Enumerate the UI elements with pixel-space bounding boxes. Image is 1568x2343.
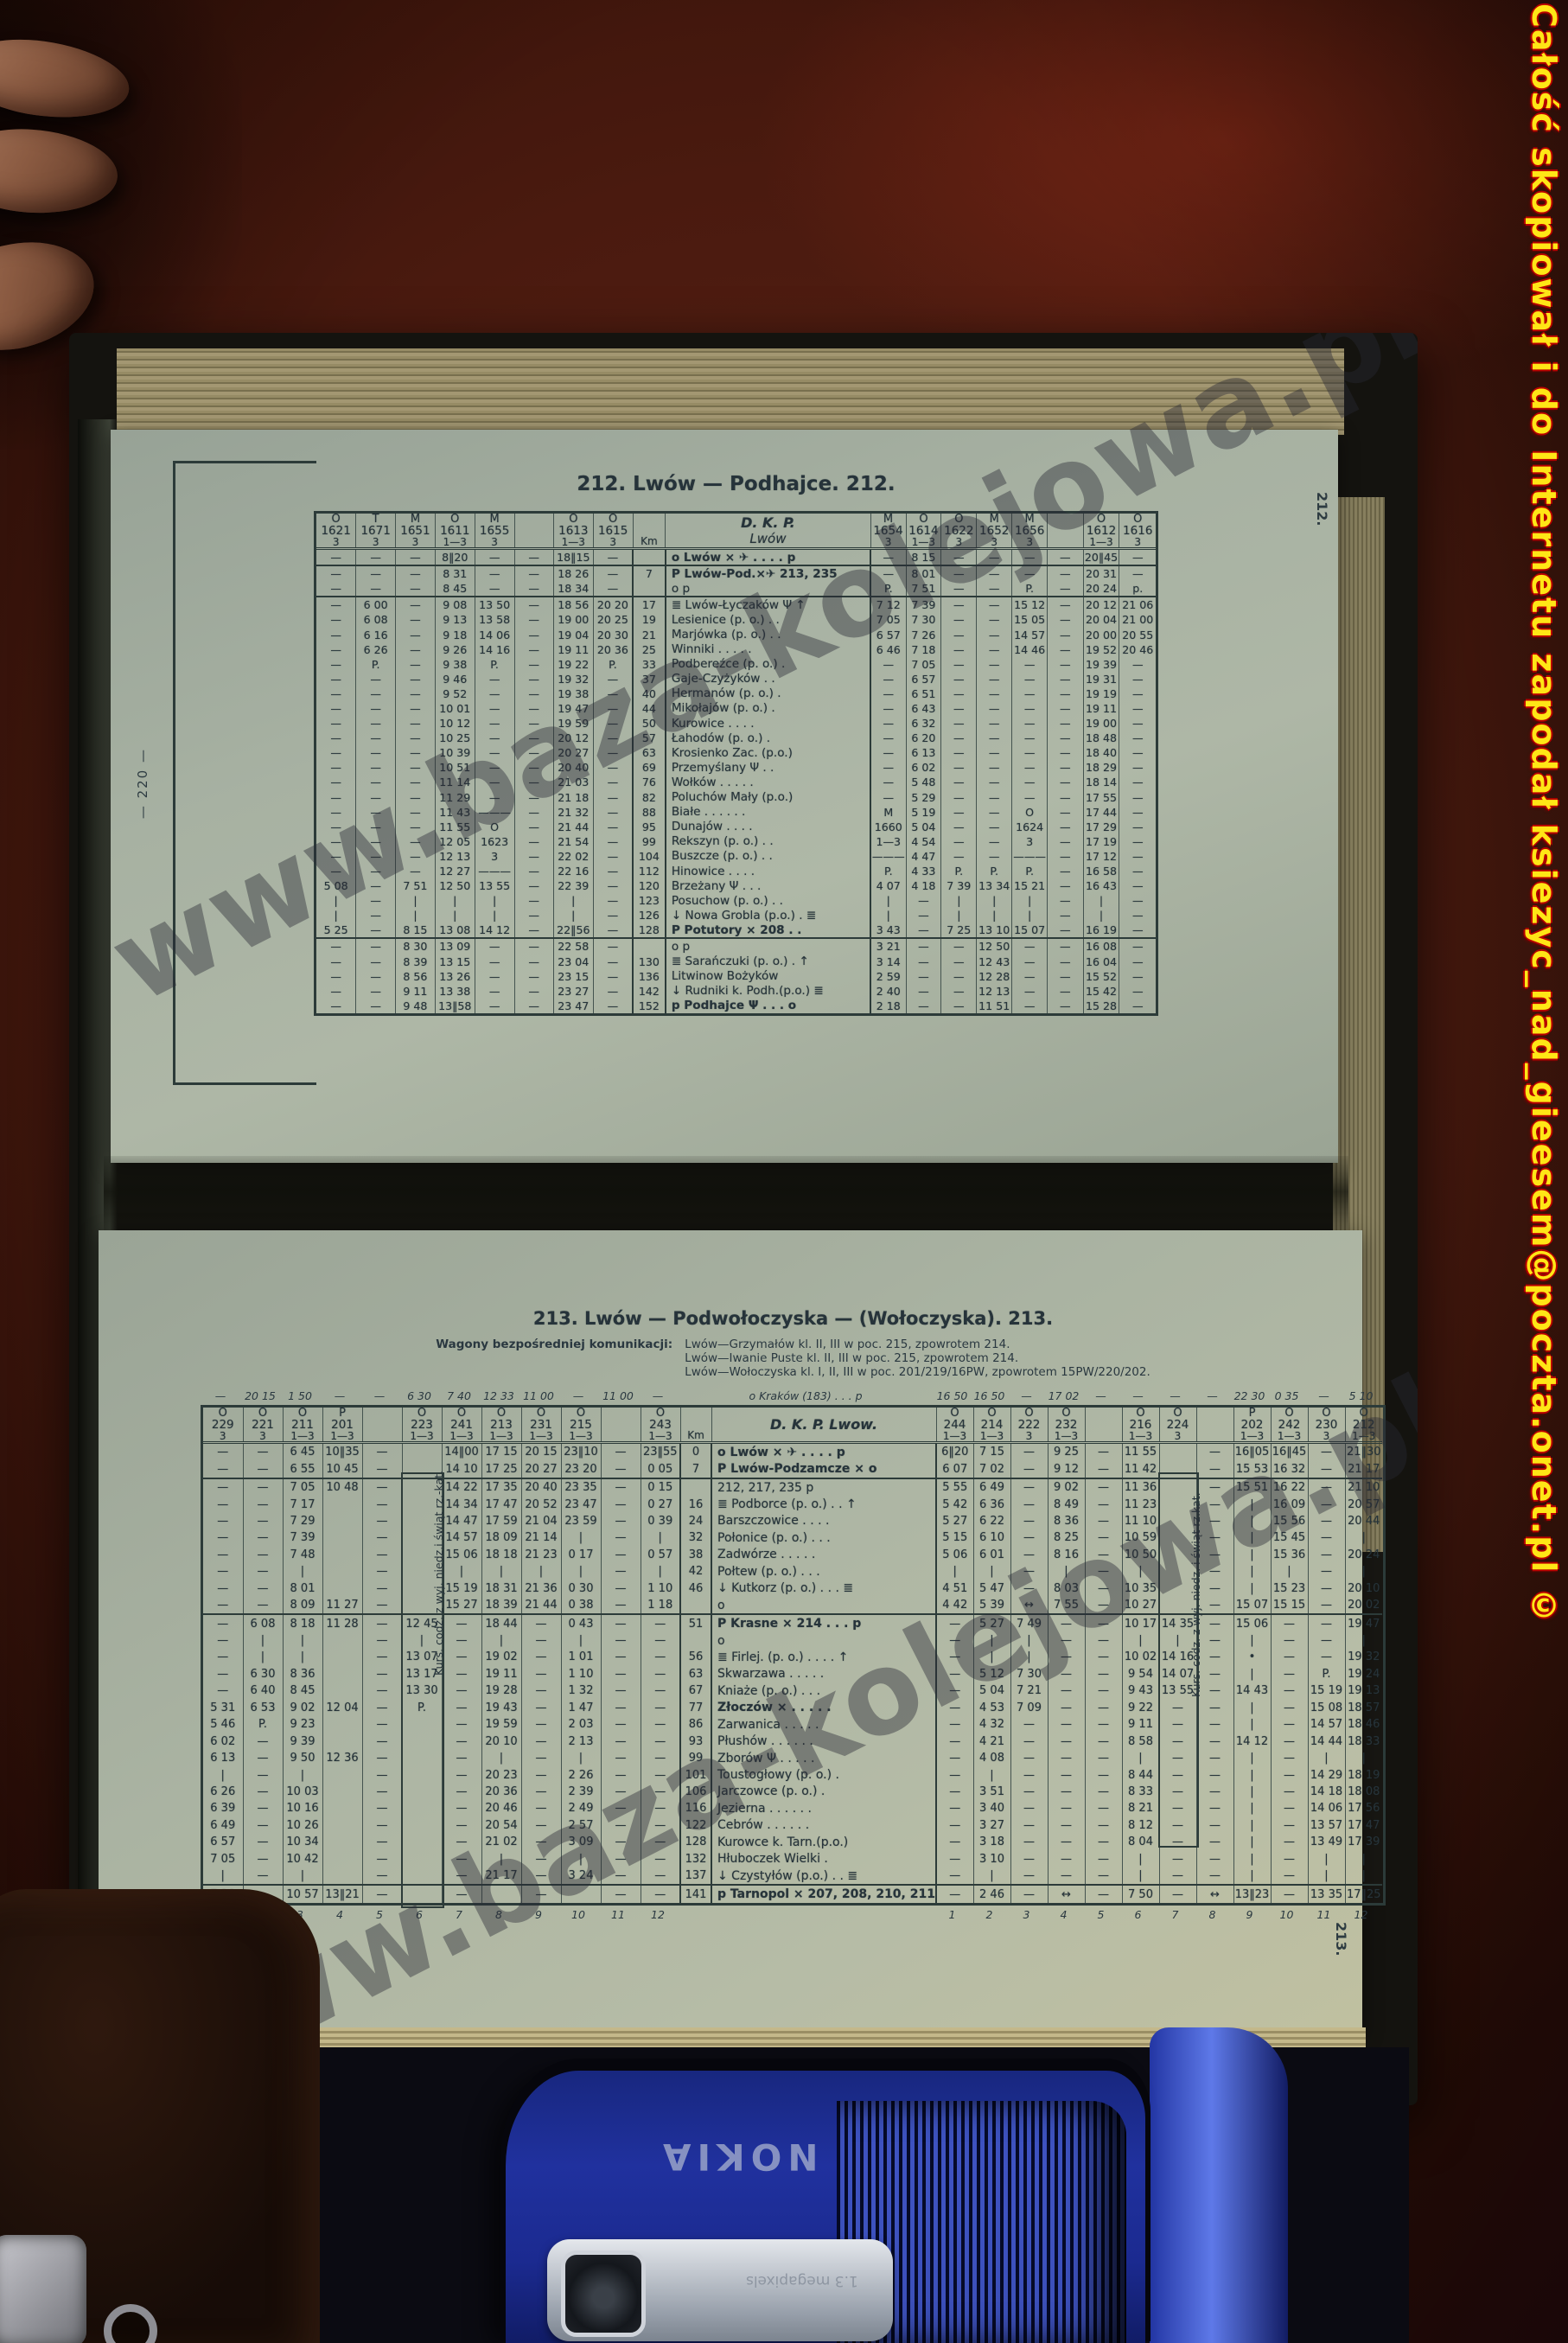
time-cell: —: [641, 1750, 680, 1766]
time-cell: —: [514, 672, 553, 686]
time-cell: —: [870, 745, 906, 760]
annotation-cell: —: [558, 1389, 598, 1402]
km-cell: 116: [680, 1800, 711, 1816]
time-cell: 19 52: [1083, 642, 1119, 657]
time-cell: —: [941, 760, 977, 775]
time-cell: —: [475, 672, 514, 686]
time-cell: |: [561, 1632, 601, 1649]
time-cell: —: [1119, 954, 1156, 969]
time-cell: 16‖05: [1233, 1443, 1271, 1461]
time-cell: 20 40: [521, 1478, 561, 1496]
time-cell: —: [521, 1867, 561, 1885]
time-cell: [402, 1443, 442, 1461]
time-cell: 5 12: [973, 1666, 1010, 1682]
time-cell: —: [941, 745, 977, 760]
time-cell: |: [973, 1563, 1010, 1580]
train-column-header: O2421—3: [1271, 1408, 1308, 1443]
time-cell: —: [362, 1666, 402, 1682]
km-cell: [680, 1597, 711, 1614]
time-cell: —: [593, 999, 633, 1013]
time-cell: P.: [870, 581, 906, 597]
time-cell: 9 22: [1122, 1700, 1159, 1716]
time-cell: —: [475, 716, 514, 731]
time-cell: 16 58: [1083, 864, 1119, 878]
time-cell: —: [356, 805, 396, 820]
km-cell: 33: [633, 657, 666, 672]
time-cell: —: [870, 731, 906, 745]
time-cell: 0 57: [641, 1547, 680, 1563]
note-line: Lwów—Iwanie Puste kl. II, III w poc. 215…: [685, 1351, 1151, 1365]
time-cell: —: [601, 1784, 641, 1800]
station-cell: ≣ Sarańczuki (p. o.) . ↑: [666, 954, 870, 969]
annotation-cell: —: [638, 1389, 678, 1402]
time-cell: 20 55: [1119, 627, 1156, 642]
time-cell: —: [601, 1547, 641, 1563]
time-cell: 19 13: [1345, 1682, 1382, 1699]
time-cell: —: [362, 1649, 402, 1665]
time-cell: —: [1010, 1580, 1048, 1597]
train-column-header: O16121—3: [1083, 514, 1119, 549]
time-cell: —: [641, 1817, 680, 1834]
time-cell: |: [283, 1632, 322, 1649]
time-cell: |: [936, 1563, 973, 1580]
time-cell: [402, 1800, 442, 1816]
annotation-cell: 6: [1119, 1908, 1157, 1921]
time-cell: —: [514, 820, 553, 834]
time-cell: —: [1012, 984, 1048, 999]
time-cell: —: [1271, 1716, 1308, 1733]
station-cell: Hermanów (p. o.) .: [666, 686, 870, 701]
time-cell: M: [870, 805, 906, 820]
time-cell: |: [1010, 1649, 1048, 1665]
time-cell: —: [356, 549, 396, 566]
time-cell: 20 10: [481, 1733, 521, 1749]
train-column-header: O16213: [316, 514, 356, 549]
time-cell: —: [1119, 745, 1156, 760]
time-cell: 18 26: [553, 565, 593, 581]
time-cell: —: [1048, 954, 1083, 969]
time-cell: —: [1119, 549, 1156, 566]
annotation-cell: 10: [1268, 1908, 1305, 1921]
phone-camera-lens: [561, 2250, 646, 2337]
time-cell: |: [561, 1529, 601, 1546]
time-cell: —: [396, 549, 436, 566]
time-cell: 8 03: [1048, 1580, 1085, 1597]
time-cell: |: [316, 893, 356, 908]
time-cell: —: [362, 1580, 402, 1597]
page-stack-top-edge: [117, 348, 1344, 435]
time-cell: 16 09: [1271, 1496, 1308, 1512]
time-cell: —: [1010, 1817, 1048, 1834]
time-cell: 12 13: [435, 849, 475, 864]
time-cell: 7 29: [283, 1513, 322, 1529]
time-cell: —: [442, 1649, 481, 1665]
time-cell: —: [362, 1496, 402, 1512]
time-cell: 9 18: [435, 627, 475, 642]
train-column-header: O2321—3: [1048, 1408, 1085, 1443]
time-cell: 15 36: [1271, 1547, 1308, 1563]
time-cell: 7 50: [1122, 1885, 1159, 1902]
annotation-cell: 11: [598, 1908, 638, 1921]
train-column-header: O2431—3: [641, 1408, 680, 1443]
time-cell: 7 26: [906, 627, 941, 642]
time-cell: —: [870, 686, 906, 701]
km-cell: 77: [680, 1700, 711, 1716]
time-cell: —: [362, 1800, 402, 1816]
time-cell: 14 43: [1233, 1682, 1271, 1699]
time-cell: —: [514, 984, 553, 999]
time-cell: —: [442, 1817, 481, 1834]
station-cell: ≣ Podborce (p. o.) . . ↑: [711, 1496, 936, 1512]
time-cell: 17 12: [1083, 849, 1119, 864]
time-cell: 15 51: [1233, 1478, 1271, 1496]
time-cell: |: [1345, 1563, 1382, 1580]
time-cell: —: [1048, 581, 1083, 597]
time-cell: —: [641, 1834, 680, 1850]
time-cell: 4 47: [906, 849, 941, 864]
time-cell: —: [870, 716, 906, 731]
time-cell: 14‖00: [442, 1443, 481, 1461]
time-cell: 21 17: [481, 1867, 521, 1885]
time-cell: —: [514, 627, 553, 642]
copier-credit-text: Całość skopiował i do Internetu zapodał …: [1525, 3, 1563, 2338]
time-cell: —: [977, 627, 1012, 642]
time-cell: —: [316, 701, 356, 716]
time-cell: —: [203, 1478, 243, 1496]
time-cell: —: [521, 1666, 561, 1682]
time-cell: —: [936, 1784, 973, 1800]
time-cell: |: [1233, 1529, 1271, 1546]
time-cell: [402, 1885, 442, 1902]
time-cell: —: [1048, 657, 1083, 672]
time-cell: |: [1233, 1700, 1271, 1716]
time-cell: —: [641, 1851, 680, 1867]
time-cell: —: [356, 938, 396, 954]
time-cell: 12 27: [435, 864, 475, 878]
corner-number-213: 213.: [1333, 1922, 1349, 1956]
time-cell: [322, 1733, 362, 1749]
time-cell: —: [396, 805, 436, 820]
time-cell: —: [243, 1867, 283, 1885]
time-cell: 6 10: [973, 1529, 1010, 1546]
time-cell: —: [1085, 1716, 1122, 1733]
time-cell: —: [936, 1632, 973, 1649]
time-cell: 3 40: [973, 1800, 1010, 1816]
phone-camera-plate: 1.3 megapixels: [547, 2239, 893, 2341]
time-cell: |: [1233, 1766, 1271, 1783]
time-cell: 6 45: [283, 1443, 322, 1461]
time-cell: 17 44: [1083, 805, 1119, 820]
time-cell: —: [356, 864, 396, 878]
km-cell: 126: [633, 908, 666, 923]
time-cell: —: [316, 864, 356, 878]
time-cell: —: [1119, 864, 1156, 878]
time-cell: —: [1308, 1649, 1345, 1665]
annotation-cell: 16 50: [934, 1389, 971, 1402]
time-cell: |: [203, 1867, 243, 1885]
time-cell: —: [1010, 1513, 1048, 1529]
km-cell: 99: [680, 1750, 711, 1766]
time-cell: |: [1345, 1529, 1382, 1546]
time-cell: 12 05: [435, 834, 475, 849]
train-column-header: O2293: [203, 1408, 243, 1443]
time-cell: —: [396, 657, 436, 672]
time-cell: P.: [941, 864, 977, 878]
time-cell: 20 24: [1083, 581, 1119, 597]
time-cell: —: [475, 565, 514, 581]
time-cell: 8 12: [1122, 1817, 1159, 1834]
time-cell: —: [1012, 954, 1048, 969]
station-cell: P Lwów-Podzamcze × o: [711, 1460, 936, 1478]
time-cell: [322, 1580, 362, 1597]
time-cell: —: [936, 1666, 973, 1682]
time-cell: —: [203, 1632, 243, 1649]
station-cell: Mikołajów (p. o.) .: [666, 701, 870, 716]
time-cell: 9 02: [1048, 1478, 1085, 1496]
time-cell: 5 04: [973, 1682, 1010, 1699]
train-column-header: O2243: [1159, 1408, 1196, 1443]
time-cell: —: [475, 938, 514, 954]
time-cell: 18 46: [1345, 1716, 1382, 1733]
book-spine-fold: [104, 1156, 1348, 1235]
time-cell: —: [906, 969, 941, 984]
time-cell: —: [475, 745, 514, 760]
time-cell: 17 29: [1083, 820, 1119, 834]
time-cell: —: [936, 1834, 973, 1850]
time-cell: —: [941, 642, 977, 657]
time-cell: |: [561, 1563, 601, 1580]
time-cell: —: [1159, 1784, 1196, 1800]
time-cell: 9 39: [283, 1733, 322, 1749]
time-cell: 11 27: [322, 1597, 362, 1614]
time-cell: 13 57: [1308, 1817, 1345, 1834]
time-cell: —: [1196, 1766, 1233, 1783]
timetable-book: — 220 — 212. 212. Lwów — Podhajce. 212. …: [69, 333, 1418, 2105]
train-column-header: O2411—3: [442, 1408, 481, 1443]
time-cell: 18 09: [481, 1529, 521, 1546]
time-cell: P.: [1308, 1666, 1345, 1682]
time-cell: —: [593, 820, 633, 834]
time-cell: 10 12: [435, 716, 475, 731]
time-cell: —: [316, 849, 356, 864]
km-cell: 99: [633, 834, 666, 849]
time-cell: —: [203, 1682, 243, 1699]
train-column-header: [362, 1408, 402, 1443]
time-cell: 22 58: [553, 938, 593, 954]
station-cell: ↓ Nowa Grobla (p.o.) . ≣: [666, 908, 870, 923]
time-cell: —: [977, 716, 1012, 731]
station-cell: Połonice (p. o.) . . .: [711, 1529, 936, 1546]
time-cell: —: [1010, 1547, 1048, 1563]
time-cell: —: [641, 1614, 680, 1631]
km-cell: 67: [680, 1682, 711, 1699]
annotation-mid: o Kraków (183) . . . p: [678, 1389, 934, 1402]
time-cell: |: [1308, 1867, 1345, 1885]
time-cell: [322, 1563, 362, 1580]
time-cell: 13 35: [1308, 1885, 1345, 1902]
time-cell: 17‖25: [1345, 1885, 1382, 1902]
km-cell: 63: [633, 745, 666, 760]
annotation-cell: 7 40: [439, 1389, 479, 1402]
time-cell: |: [941, 908, 977, 923]
time-cell: —: [356, 790, 396, 805]
time-cell: —: [316, 731, 356, 745]
time-cell: —: [521, 1682, 561, 1699]
time-cell: 8 18: [283, 1614, 322, 1631]
time-cell: —: [1119, 999, 1156, 1013]
time-cell: —: [906, 984, 941, 999]
time-cell: —: [203, 1513, 243, 1529]
time-cell: —: [442, 1733, 481, 1749]
km-cell: [680, 1478, 711, 1496]
time-cell: —: [1048, 716, 1083, 731]
time-cell: —: [514, 549, 553, 566]
time-cell: —: [1048, 1784, 1085, 1800]
train-column-header: O16223: [941, 514, 977, 549]
time-cell: —: [1196, 1817, 1233, 1834]
time-cell: 18 33: [1345, 1733, 1382, 1749]
time-cell: —: [906, 893, 941, 908]
time-cell: —: [356, 984, 396, 999]
time-cell: [322, 1547, 362, 1563]
time-cell: 21 03: [553, 775, 593, 789]
time-cell: —: [977, 790, 1012, 805]
time-cell: —: [977, 760, 1012, 775]
time-cell: 6‖20: [936, 1443, 973, 1461]
time-cell: —: [1119, 760, 1156, 775]
time-cell: 7 05: [906, 657, 941, 672]
time-cell: —: [1271, 1649, 1308, 1665]
time-cell: 20 23: [481, 1766, 521, 1783]
time-cell: —: [941, 657, 977, 672]
time-cell: |: [475, 893, 514, 908]
time-cell: 10 27: [1122, 1597, 1159, 1614]
table212-title: 212. Lwów — Podhajce. 212.: [314, 461, 1158, 511]
time-cell: —: [1308, 1632, 1345, 1649]
annotation-cell: —: [201, 1389, 240, 1402]
time-cell: —: [1048, 790, 1083, 805]
km-cell: 101: [680, 1766, 711, 1783]
time-cell: |: [1122, 1632, 1159, 1649]
time-cell: —: [396, 775, 436, 789]
time-cell: —: [1119, 565, 1156, 581]
time-cell: 20 12: [553, 731, 593, 745]
time-cell: —: [1012, 969, 1048, 984]
time-cell: 5 25: [316, 923, 356, 938]
time-cell: —: [316, 938, 356, 954]
time-cell: [402, 1817, 442, 1834]
time-cell: —: [316, 954, 356, 969]
station-cell: o: [711, 1597, 936, 1614]
time-cell: 8 44: [1122, 1766, 1159, 1783]
km-cell: [633, 549, 666, 566]
time-cell: —: [362, 1597, 402, 1614]
time-cell: |: [1308, 1750, 1345, 1766]
time-cell: —: [1048, 1750, 1085, 1766]
km-cell: 88: [633, 805, 666, 820]
metal-clip: [0, 2235, 86, 2343]
time-cell: 15 06: [442, 1547, 481, 1563]
time-cell: 17 55: [1083, 790, 1119, 805]
time-cell: 11 10: [1122, 1513, 1159, 1529]
time-cell: —: [514, 938, 553, 954]
time-cell: 19 31: [1083, 672, 1119, 686]
time-cell: —: [1010, 1733, 1048, 1749]
station-cell: Toustogłowy (p. o.) .: [711, 1766, 936, 1783]
km-cell: 32: [680, 1529, 711, 1546]
time-cell: 4 51: [936, 1580, 973, 1597]
time-cell: —: [396, 565, 436, 581]
time-cell: —: [601, 1460, 641, 1478]
time-cell: 19 59: [481, 1716, 521, 1733]
annotation-cell: 12: [638, 1908, 678, 1921]
time-cell: —: [977, 549, 1012, 566]
time-cell: 20 46: [1119, 642, 1156, 657]
time-cell: —: [1271, 1851, 1308, 1867]
time-cell: —: [475, 686, 514, 701]
time-cell: 8 45: [435, 581, 475, 597]
time-cell: |: [1233, 1800, 1271, 1816]
time-cell: 20 52: [521, 1496, 561, 1512]
time-cell: 19 04: [553, 627, 593, 642]
time-cell: 4 21: [973, 1733, 1010, 1749]
time-cell: [481, 1885, 521, 1902]
time-cell: —: [593, 672, 633, 686]
time-cell: —: [521, 1716, 561, 1733]
time-cell: 10 26: [283, 1817, 322, 1834]
time-cell: —: [1271, 1867, 1308, 1885]
km-cell: 106: [680, 1784, 711, 1800]
time-cell: —: [475, 775, 514, 789]
time-cell: —: [1085, 1580, 1122, 1597]
station-cell: 212, 217, 235 p: [711, 1478, 936, 1496]
time-cell: 6 02: [906, 760, 941, 775]
time-cell: 20 27: [521, 1460, 561, 1478]
time-cell: —: [442, 1682, 481, 1699]
time-cell: —: [1085, 1666, 1122, 1682]
time-cell: —: [514, 686, 553, 701]
time-cell: 9 12: [1048, 1460, 1085, 1478]
time-cell: —: [977, 820, 1012, 834]
time-cell: 9 43: [1122, 1682, 1159, 1699]
station-cell: Barszczowice . . . .: [711, 1513, 936, 1529]
time-cell: 14 10: [442, 1460, 481, 1478]
time-cell: 20 31: [1083, 565, 1119, 581]
time-cell: P.: [356, 657, 396, 672]
time-cell: 8 31: [435, 565, 475, 581]
time-cell: 6 08: [356, 612, 396, 627]
time-cell: —: [475, 701, 514, 716]
time-cell: —: [936, 1766, 973, 1783]
time-cell: —: [362, 1529, 402, 1546]
km-cell: 142: [633, 984, 666, 999]
station-cell: Zarwanica . . . . .: [711, 1716, 936, 1733]
station-cell: ≣ Lwów-Łyczaków Ψ ↑: [666, 597, 870, 612]
time-cell: |: [283, 1766, 322, 1783]
time-cell: —: [1271, 1766, 1308, 1783]
time-cell: 18 18: [481, 1547, 521, 1563]
time-cell: 6 13: [203, 1750, 243, 1766]
time-cell: —: [1119, 731, 1156, 745]
time-cell: 15 12: [1012, 597, 1048, 612]
time-cell: 9 23: [283, 1716, 322, 1733]
time-cell: 13 09: [435, 938, 475, 954]
time-cell: 9 11: [396, 984, 436, 999]
time-cell: |: [396, 908, 436, 923]
time-cell: |: [1233, 1666, 1271, 1682]
station-cell: Marjówka (p. o.) . .: [666, 627, 870, 642]
time-cell: 12 50: [435, 878, 475, 893]
